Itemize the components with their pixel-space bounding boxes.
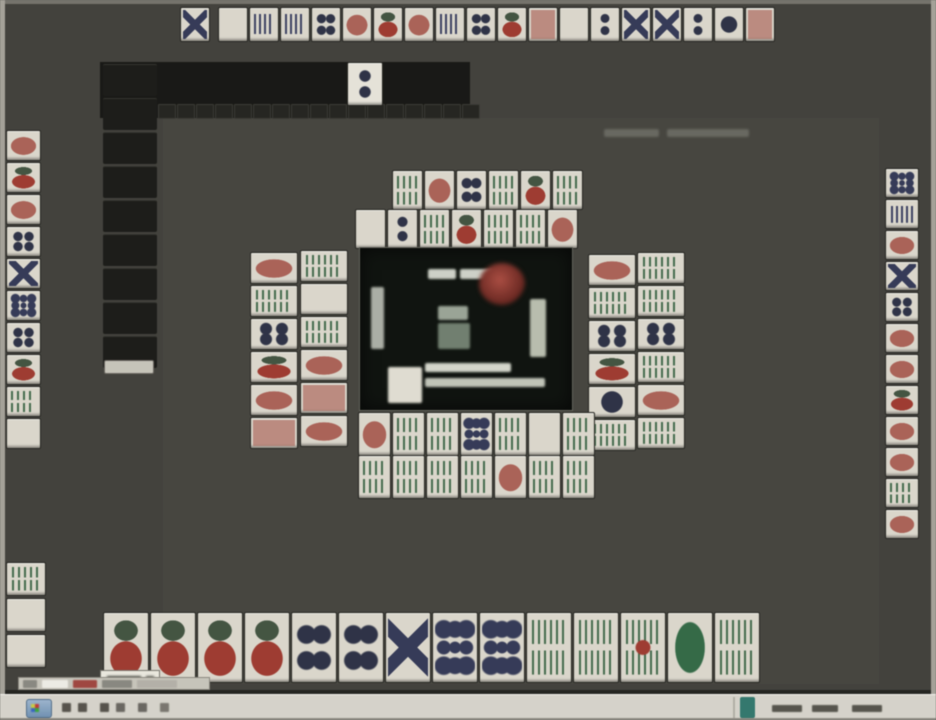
mahjong-tile-pin4 bbox=[6, 226, 41, 257]
dora-indicator-tile bbox=[347, 62, 383, 106]
mahjong-tile-sou bbox=[6, 562, 46, 596]
mahjong-tile-manr bbox=[300, 349, 348, 381]
tray-text bbox=[812, 705, 838, 712]
discards-bottom-row1 bbox=[358, 412, 595, 456]
mahjong-tile-manr bbox=[637, 384, 685, 416]
wall-back bbox=[103, 234, 157, 266]
game-status-message bbox=[604, 129, 749, 137]
bottom-player-name-text bbox=[425, 363, 511, 372]
mahjong-tile-man bbox=[6, 162, 41, 193]
taskbar-item-icon[interactable] bbox=[100, 703, 109, 712]
mahjong-tile-man bbox=[497, 7, 527, 42]
mahjong-tile-pin9 bbox=[460, 412, 493, 456]
mahjong-tile-man bbox=[373, 7, 403, 42]
mahjong-tile-sou bbox=[494, 412, 527, 456]
mini-back bbox=[424, 104, 442, 119]
mahjong-tile-hatsu[interactable] bbox=[667, 612, 713, 683]
mahjong-tile-sou bbox=[460, 455, 493, 499]
window-edge-top bbox=[0, 0, 936, 4]
left-player-score-text bbox=[371, 287, 384, 349]
mahjong-tile-sou bbox=[885, 478, 919, 508]
discards-right-col1 bbox=[588, 254, 636, 451]
mahjong-tile-haku bbox=[528, 412, 561, 456]
mini-back bbox=[253, 104, 271, 119]
discards-top-row1 bbox=[392, 170, 583, 210]
mahjong-tile-sou5[interactable] bbox=[620, 612, 666, 683]
mahjong-tile-haku bbox=[559, 7, 589, 42]
mahjong-tile-sou bbox=[552, 170, 583, 210]
mahjong-tile-manr bbox=[885, 447, 919, 477]
mahjong-tile-sou bbox=[392, 170, 423, 210]
clock-text bbox=[852, 705, 882, 712]
mahjong-tile-sou bbox=[358, 455, 391, 499]
wall-back bbox=[103, 132, 157, 164]
mahjong-tile-sou bbox=[637, 285, 685, 317]
mahjong-tile-manr bbox=[6, 130, 41, 161]
mahjong-tile-manr bbox=[885, 416, 919, 446]
mahjong-tile-pinX bbox=[885, 261, 919, 291]
mahjong-tile-pin4 bbox=[6, 322, 41, 353]
left-player-hand bbox=[6, 130, 41, 449]
mahjong-tile-manr bbox=[424, 170, 455, 210]
mini-back bbox=[443, 104, 461, 119]
status-seg bbox=[23, 680, 37, 688]
top-wall-row bbox=[158, 104, 480, 119]
mini-back bbox=[215, 104, 233, 119]
status-field[interactable] bbox=[42, 680, 68, 688]
mahjong-tile-man bbox=[451, 209, 482, 249]
mahjong-tile-sou bbox=[588, 419, 636, 451]
wall-end-tile bbox=[104, 360, 154, 374]
taskbar-item-icon[interactable] bbox=[160, 703, 169, 712]
mahjong-tile-pinbar bbox=[885, 199, 919, 229]
mahjong-tile-pin1 bbox=[588, 386, 636, 418]
mahjong-tile-pinX bbox=[6, 258, 41, 289]
mahjong-tile-pin4 bbox=[637, 318, 685, 350]
mahjong-tile-sou bbox=[6, 386, 41, 417]
mahjong-tile-sou bbox=[426, 412, 459, 456]
right-player-score-text bbox=[530, 299, 546, 357]
mahjong-tile-manr bbox=[547, 209, 578, 249]
mahjong-tile-manr bbox=[250, 384, 298, 416]
mini-back bbox=[310, 104, 328, 119]
mahjong-tile-pin4[interactable] bbox=[291, 612, 337, 683]
mahjong-tile-manr bbox=[885, 354, 919, 384]
mahjong-tile-pin4 bbox=[588, 320, 636, 352]
center-info-lower bbox=[438, 323, 470, 349]
mahjong-tile-pinX[interactable] bbox=[385, 612, 431, 683]
mahjong-tile-haku bbox=[355, 209, 386, 249]
window-edge-left bbox=[0, 0, 5, 694]
mahjong-tile-sou bbox=[300, 316, 348, 348]
mahjong-tile-haku bbox=[300, 283, 348, 315]
mahjong-tile-man bbox=[885, 385, 919, 415]
window-edge-right bbox=[931, 0, 936, 694]
wall-back bbox=[103, 98, 157, 130]
mahjong-tile-man[interactable] bbox=[244, 612, 290, 683]
round-info-text bbox=[428, 269, 456, 279]
mahjong-tile-sou bbox=[392, 412, 425, 456]
mini-back bbox=[329, 104, 347, 119]
mahjong-tile-man bbox=[6, 354, 41, 385]
tray-separator bbox=[733, 697, 735, 719]
mahjong-tile-pin2 bbox=[683, 7, 713, 42]
mahjong-tile-pin4 bbox=[466, 7, 496, 42]
mahjong-tile-red bbox=[745, 7, 775, 42]
quicklaunch-icon[interactable] bbox=[78, 703, 87, 712]
discards-right-col2 bbox=[637, 252, 685, 449]
mahjong-tile-pin9[interactable] bbox=[479, 612, 525, 683]
status-seg bbox=[137, 680, 177, 688]
mahjong-tile-red bbox=[300, 382, 348, 414]
mini-back bbox=[405, 104, 423, 119]
center-info-upper bbox=[438, 306, 468, 320]
mahjong-tile-pin9[interactable] bbox=[432, 612, 478, 683]
mahjong-tile-sou bbox=[637, 252, 685, 284]
taskbar-item-icon[interactable] bbox=[116, 703, 125, 712]
mahjong-tile-manr bbox=[885, 323, 919, 353]
right-player-hand bbox=[885, 168, 919, 539]
tray-app-icon[interactable] bbox=[740, 697, 755, 718]
discards-left-col1 bbox=[250, 252, 298, 449]
mahjong-tile-manr bbox=[885, 230, 919, 260]
windows-logo-icon bbox=[31, 704, 39, 712]
mahjong-tile-sou[interactable] bbox=[573, 612, 619, 683]
dealer-marker bbox=[479, 263, 525, 305]
mini-back bbox=[234, 104, 252, 119]
mahjong-tile-pin4 bbox=[250, 318, 298, 350]
top-player-hand-lone-tile bbox=[180, 7, 210, 42]
mahjong-tile-sou bbox=[300, 250, 348, 282]
mahjong-tile-manr bbox=[342, 7, 372, 42]
client-status-bar bbox=[18, 677, 210, 690]
mini-back bbox=[291, 104, 309, 119]
mini-back bbox=[462, 104, 480, 119]
mahjong-tile-pinbar bbox=[435, 7, 465, 42]
bottom-player-wind-marker bbox=[388, 367, 422, 403]
mahjong-tile-sou bbox=[419, 209, 450, 249]
wall-back bbox=[103, 302, 157, 334]
mahjong-tile-pin2 bbox=[590, 7, 620, 42]
mini-back bbox=[367, 104, 385, 119]
mahjong-tile-man bbox=[520, 170, 551, 210]
mahjong-tile-sou bbox=[528, 455, 561, 499]
status-seg bbox=[102, 680, 132, 688]
mahjong-tile-pinX bbox=[180, 7, 210, 42]
mini-back bbox=[196, 104, 214, 119]
mahjong-tile-pin4 bbox=[311, 7, 341, 42]
mahjong-tile-pin1 bbox=[714, 7, 744, 42]
mahjong-tile-red bbox=[250, 417, 298, 449]
mahjong-tile-sou[interactable] bbox=[526, 612, 572, 683]
mini-back bbox=[348, 104, 366, 119]
mahjong-tile-sou bbox=[483, 209, 514, 249]
mahjong-tile-man[interactable] bbox=[197, 612, 243, 683]
mahjong-tile-pin2 bbox=[387, 209, 418, 249]
mini-back bbox=[177, 104, 195, 119]
mahjong-tile-pinbar bbox=[249, 7, 279, 42]
mahjong-tile-haku bbox=[218, 7, 248, 42]
mahjong-tile-man bbox=[250, 351, 298, 383]
player-hand bbox=[103, 612, 760, 683]
status-message-part2 bbox=[667, 129, 749, 137]
mahjong-tile-sou bbox=[426, 455, 459, 499]
quicklaunch-icon[interactable] bbox=[62, 703, 71, 712]
start-button[interactable] bbox=[26, 699, 52, 718]
mahjong-tile-pin4[interactable] bbox=[338, 612, 384, 683]
status-message-part1 bbox=[604, 129, 659, 137]
mahjong-tile-manr bbox=[588, 254, 636, 286]
mahjong-tile-manr bbox=[6, 194, 41, 225]
wall-back bbox=[103, 268, 157, 300]
mahjong-tile-manr bbox=[358, 412, 391, 456]
mahjong-tile-sou bbox=[637, 417, 685, 449]
mahjong-tile-haku bbox=[6, 634, 46, 668]
mahjong-tile-pinbar bbox=[280, 7, 310, 42]
top-player-hand bbox=[218, 7, 775, 42]
mahjong-tile-pin2 bbox=[347, 62, 383, 106]
corner-meld-tiles bbox=[6, 562, 46, 668]
mahjong-tile-sou bbox=[588, 287, 636, 319]
mahjong-tile-manr bbox=[404, 7, 434, 42]
mahjong-tile-manr bbox=[494, 455, 527, 499]
mahjong-tile-pinX bbox=[652, 7, 682, 42]
wall-back bbox=[103, 200, 157, 232]
wall-stack-left bbox=[101, 62, 159, 368]
mahjong-tile-manr bbox=[250, 252, 298, 284]
center-score-panel bbox=[359, 247, 573, 411]
mahjong-tile-sou bbox=[562, 455, 595, 499]
mahjong-tile-pin4 bbox=[456, 170, 487, 210]
mahjong-tile-pin9 bbox=[6, 290, 41, 321]
mahjong-tile-sou bbox=[392, 455, 425, 499]
mahjong-tile-sou bbox=[515, 209, 546, 249]
mahjong-tile-haku bbox=[6, 418, 41, 449]
mahjong-tile-sou bbox=[488, 170, 519, 210]
mahjong-tile-sou[interactable] bbox=[714, 612, 760, 683]
mahjong-tile-sou bbox=[562, 412, 595, 456]
mini-back bbox=[386, 104, 404, 119]
bottom-player-score-text bbox=[425, 378, 545, 387]
mahjong-tile-man bbox=[588, 353, 636, 385]
mahjong-tile-manr bbox=[300, 415, 348, 447]
mini-back bbox=[272, 104, 290, 119]
mahjong-tile-sou bbox=[637, 351, 685, 383]
tray-text bbox=[772, 705, 802, 712]
taskbar bbox=[0, 694, 936, 720]
mahjong-tile-sou bbox=[250, 285, 298, 317]
wall-back bbox=[103, 64, 157, 96]
discards-top-row2 bbox=[355, 209, 578, 249]
mini-back bbox=[158, 104, 176, 119]
discards-bottom-row2 bbox=[358, 455, 595, 499]
taskbar-item-icon[interactable] bbox=[138, 703, 147, 712]
mahjong-tile-pin9 bbox=[885, 168, 919, 198]
mahjong-tile-red bbox=[528, 7, 558, 42]
mahjong-tile-pinX bbox=[621, 7, 651, 42]
mahjong-tile-manr bbox=[885, 509, 919, 539]
status-alert-button[interactable] bbox=[73, 680, 97, 688]
mahjong-tile-haku bbox=[6, 598, 46, 632]
mahjong-tile-pin4 bbox=[885, 292, 919, 322]
wall-back bbox=[103, 166, 157, 198]
mahjong-game-screen bbox=[0, 0, 936, 720]
discards-left-col2 bbox=[300, 250, 348, 447]
